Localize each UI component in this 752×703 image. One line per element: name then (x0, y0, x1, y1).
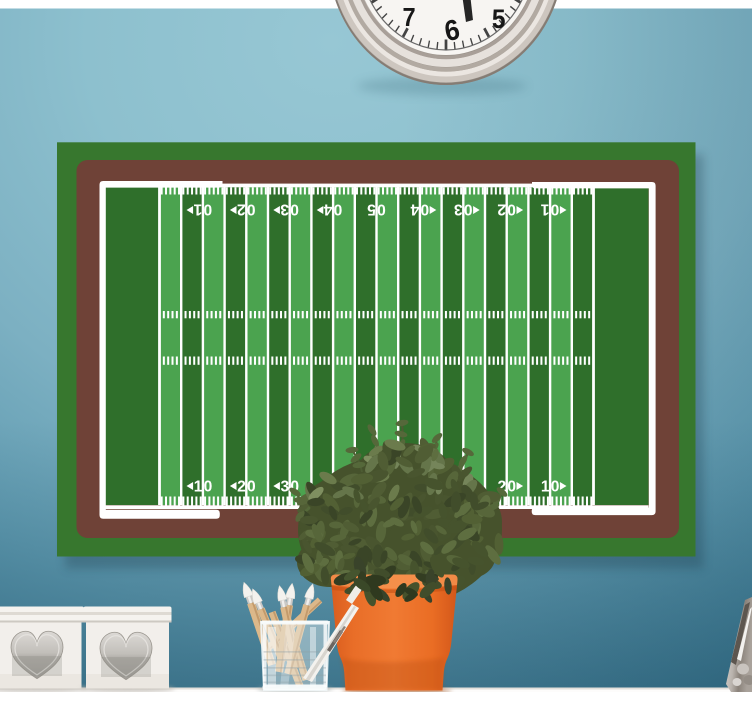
svg-text:0: 0 (377, 201, 386, 218)
svg-text:1: 1 (541, 478, 550, 495)
svg-text:0: 0 (463, 201, 472, 218)
svg-text:0: 0 (204, 478, 213, 495)
svg-text:2: 2 (237, 201, 246, 218)
svg-text:0: 0 (507, 478, 516, 495)
svg-text:0: 0 (333, 201, 342, 218)
svg-text:7: 7 (402, 4, 415, 32)
svg-text:5: 5 (367, 201, 376, 218)
svg-text:0: 0 (290, 201, 299, 218)
svg-text:0: 0 (551, 478, 560, 495)
svg-text:1: 1 (193, 201, 202, 218)
svg-text:0: 0 (247, 478, 256, 495)
svg-text:0: 0 (246, 201, 255, 218)
svg-text:1: 1 (194, 478, 203, 495)
svg-text:3: 3 (281, 478, 290, 495)
svg-text:4: 4 (323, 201, 332, 218)
svg-text:1: 1 (540, 201, 549, 218)
svg-text:5: 5 (492, 5, 506, 34)
svg-text:0: 0 (550, 201, 559, 218)
svg-text:3: 3 (454, 201, 463, 218)
svg-text:0: 0 (420, 201, 429, 218)
svg-text:0: 0 (507, 201, 516, 218)
svg-text:3: 3 (280, 201, 289, 218)
svg-text:0: 0 (203, 201, 212, 218)
svg-text:2: 2 (237, 478, 246, 495)
svg-text:4: 4 (410, 201, 419, 218)
svg-text:2: 2 (497, 201, 506, 218)
